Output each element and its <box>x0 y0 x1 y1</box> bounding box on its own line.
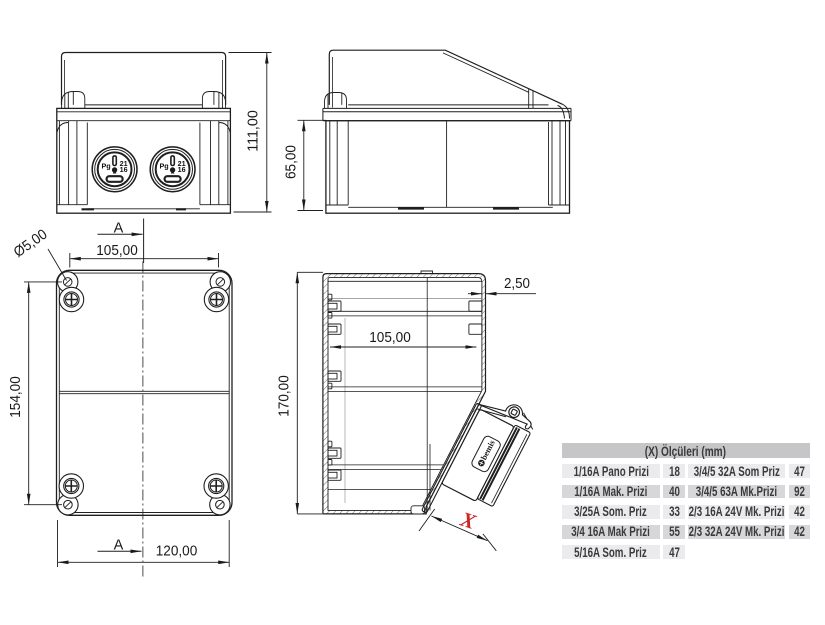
svg-text:154,00: 154,00 <box>8 376 24 418</box>
svg-text:120,00: 120,00 <box>156 543 198 559</box>
svg-text:X: X <box>457 506 480 534</box>
svg-text:105,00: 105,00 <box>369 330 411 346</box>
svg-text:Pg: Pg <box>102 161 111 170</box>
svg-text:Ø5,00: Ø5,00 <box>11 227 50 261</box>
svg-text:111,00: 111,00 <box>246 110 262 152</box>
svg-text:105,00: 105,00 <box>96 243 138 259</box>
svg-text:65,00: 65,00 <box>284 145 300 179</box>
svg-text:16: 16 <box>120 165 128 174</box>
svg-text:Pg: Pg <box>160 161 169 170</box>
svg-text:16: 16 <box>178 165 186 174</box>
svg-text:A: A <box>114 537 124 553</box>
svg-text:A: A <box>114 220 124 236</box>
svg-text:170,00: 170,00 <box>277 375 293 417</box>
svg-text:2,50: 2,50 <box>504 276 530 292</box>
